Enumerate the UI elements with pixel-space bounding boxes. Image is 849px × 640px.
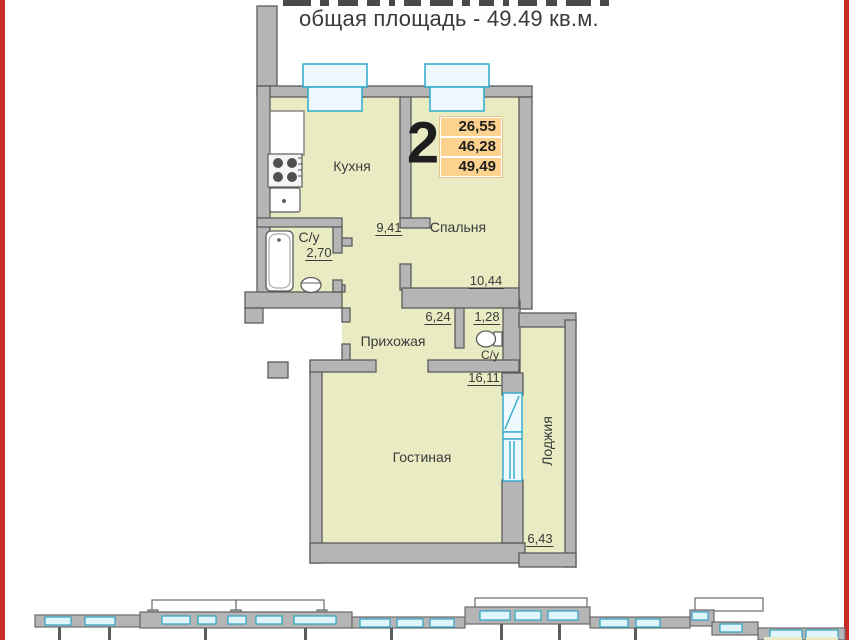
- balcony-door-window: [503, 393, 522, 481]
- dim-wc: 1,28: [473, 309, 500, 325]
- page: общая площадь - 49.49 кв.м.: [0, 0, 849, 640]
- bedroom-window: [425, 64, 489, 111]
- dim-living: 16,11: [467, 370, 501, 386]
- bathtub-icon: [266, 231, 293, 291]
- dim-bathroom: 2,70: [305, 245, 332, 261]
- living-area-value: 26,55: [441, 118, 501, 136]
- label-bathroom: С/у: [299, 229, 320, 245]
- sink-icon: [270, 188, 300, 212]
- label-loggia: Лоджия: [539, 416, 555, 466]
- usable-area-value: 46,28: [441, 138, 501, 156]
- area-summary-box: 26,55 46,28 49,49: [439, 116, 503, 178]
- wc-toilet-icon: [477, 331, 503, 347]
- label-wc: С/у: [481, 348, 499, 362]
- building-strip: [35, 598, 845, 640]
- kitchen-window: [303, 64, 367, 111]
- kitchen-counter-icon: [270, 111, 304, 155]
- dim-loggia: 6,43: [526, 531, 553, 547]
- total-area-value: 49,49: [441, 158, 501, 176]
- dim-bedroom: 10,44: [469, 273, 504, 289]
- toilet-icon: [301, 278, 321, 293]
- dim-kitchen: 9,41: [375, 220, 402, 236]
- stove-icon: [268, 154, 302, 187]
- dim-hallway: 6,24: [424, 309, 451, 325]
- label-bedroom: Спальня: [430, 219, 486, 235]
- apartment-number: 2: [407, 110, 439, 177]
- label-hallway: Прихожая: [361, 333, 426, 349]
- label-kitchen: Кухня: [333, 158, 370, 174]
- label-living: Гостиная: [393, 449, 452, 465]
